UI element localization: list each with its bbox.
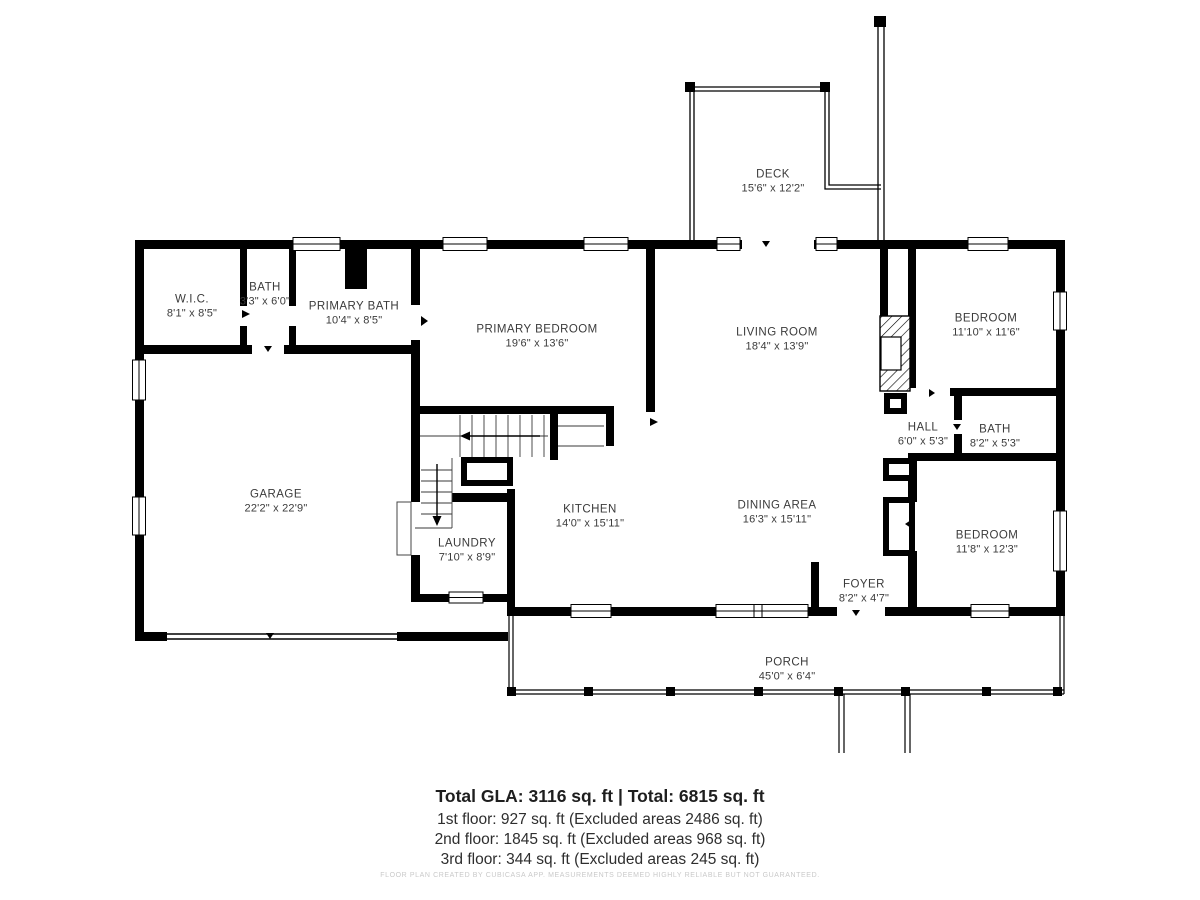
room-name: LIVING ROOM — [736, 325, 818, 339]
room-label-garage: GARAGE 22'2" x 22'9" — [245, 487, 308, 516]
room-label-hall: HALL 6'0" x 5'3" — [898, 420, 948, 449]
room-dims: 10'4" x 8'5" — [309, 315, 399, 329]
room-label-foyer: FOYER 8'2" x 4'7" — [839, 577, 889, 606]
closets — [464, 396, 912, 553]
garage-door — [167, 630, 397, 642]
room-dims: 11'10" x 11'6" — [952, 327, 1020, 341]
room-dims: 16'3" x 15'11" — [737, 514, 816, 528]
room-label-wic: W.I.C. 8'1" x 8'5" — [167, 292, 217, 321]
room-name: BEDROOM — [956, 528, 1019, 542]
room-label-bath-upper: BATH 3'3" x 6'0" — [240, 280, 290, 309]
room-dims: 8'2" x 4'7" — [839, 593, 889, 607]
room-name: W.I.C. — [167, 292, 217, 306]
summary-floor3: 3rd floor: 344 sq. ft (Excluded areas 24… — [0, 851, 1200, 869]
room-name: BATH — [240, 280, 290, 294]
room-name: BATH — [970, 422, 1020, 436]
room-label-bath-east: BATH 8'2" x 5'3" — [970, 422, 1020, 451]
porch-posts — [507, 687, 1062, 696]
floorplan-page: DECK 15'6" x 12'2" W.I.C. 8'1" x 8'5" BA… — [0, 0, 1200, 900]
room-label-deck: DECK 15'6" x 12'2" — [742, 167, 805, 196]
disclaimer-text: FLOOR PLAN CREATED BY CUBICASA APP. MEAS… — [0, 872, 1200, 879]
summary-total: Total GLA: 3116 sq. ft | Total: 6815 sq.… — [0, 786, 1200, 807]
room-label-living-room: LIVING ROOM 18'4" x 13'9" — [736, 325, 818, 354]
summary-floor2: 2nd floor: 1845 sq. ft (Excluded areas 9… — [0, 831, 1200, 849]
room-dims: 11'8" x 12'3" — [956, 544, 1019, 558]
room-name: FOYER — [839, 577, 889, 591]
room-name: BEDROOM — [952, 311, 1020, 325]
room-label-kitchen: KITCHEN 14'0" x 15'11" — [556, 502, 624, 531]
door-openings — [252, 238, 885, 617]
room-name: KITCHEN — [556, 502, 624, 516]
room-name: LAUNDRY — [438, 536, 496, 550]
room-dims: 7'10" x 8'9" — [438, 552, 496, 566]
room-dims: 14'0" x 15'11" — [556, 518, 624, 532]
area-summary: Total GLA: 3116 sq. ft | Total: 6815 sq.… — [0, 786, 1200, 869]
room-dims: 18'4" x 13'9" — [736, 341, 818, 355]
room-name: DECK — [742, 167, 805, 181]
fireplace — [880, 316, 910, 391]
room-label-primary-bath: PRIMARY BATH 10'4" x 8'5" — [309, 299, 399, 328]
door-swing — [397, 502, 411, 555]
room-dims: 22'2" x 22'9" — [245, 503, 308, 517]
door-ticks — [242, 241, 961, 616]
room-label-primary-bedroom: PRIMARY BEDROOM 19'6" x 13'6" — [476, 322, 597, 351]
room-label-bedroom-se: BEDROOM 11'8" x 12'3" — [956, 528, 1019, 557]
room-name: PRIMARY BATH — [309, 299, 399, 313]
room-dims: 45'0" x 6'4" — [759, 671, 816, 685]
room-name: DINING AREA — [737, 498, 816, 512]
summary-floor1: 1st floor: 927 sq. ft (Excluded areas 24… — [0, 811, 1200, 829]
room-name: HALL — [898, 420, 948, 434]
room-name: PORCH — [759, 655, 816, 669]
room-dims: 19'6" x 13'6" — [476, 338, 597, 352]
room-label-laundry: LAUNDRY 7'10" x 8'9" — [438, 536, 496, 565]
room-dims: 3'3" x 6'0" — [240, 296, 290, 310]
room-dims: 15'6" x 12'2" — [742, 183, 805, 197]
room-label-bedroom-ne: BEDROOM 11'10" x 11'6" — [952, 311, 1020, 340]
room-label-porch: PORCH 45'0" x 6'4" — [759, 655, 816, 684]
deck-posts — [685, 16, 886, 92]
room-dims: 6'0" x 5'3" — [898, 436, 948, 450]
deck-outline — [690, 22, 884, 240]
room-label-dining-area: DINING AREA 16'3" x 15'11" — [737, 498, 816, 527]
room-name: PRIMARY BEDROOM — [476, 322, 597, 336]
room-dims: 8'1" x 8'5" — [167, 308, 217, 322]
room-dims: 8'2" x 5'3" — [970, 438, 1020, 452]
room-name: GARAGE — [245, 487, 308, 501]
